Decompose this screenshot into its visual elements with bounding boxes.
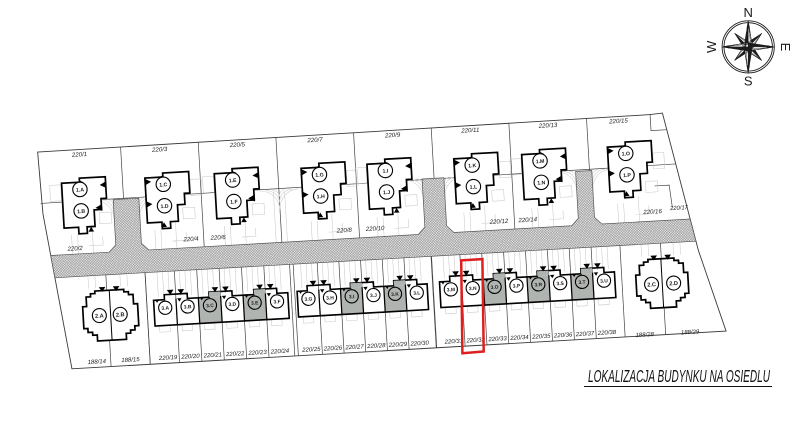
svg-text:1.M: 1.M [536,159,545,165]
svg-text:220/23: 220/23 [247,350,267,357]
svg-text:3.T: 3.T [578,280,585,286]
svg-text:220/4: 220/4 [182,236,199,244]
svg-text:220/7: 220/7 [306,136,323,144]
svg-text:188/15: 188/15 [121,357,140,364]
svg-text:3.D: 3.D [228,302,236,308]
svg-text:1.C: 1.C [159,182,168,188]
svg-text:1.G: 1.G [315,172,324,178]
svg-text:1.D: 1.D [160,204,169,210]
svg-text:LOKALIZACJA BUDYNKU NA OSIEDLU: LOKALIZACJA BUDYNKU NA OSIEDLU [588,366,770,386]
svg-text:3.J: 3.J [370,293,377,299]
svg-text:1.J: 1.J [383,190,391,196]
svg-text:220/13: 220/13 [537,122,558,130]
svg-text:1.I: 1.I [382,168,389,174]
svg-text:3.C: 3.C [206,303,214,309]
svg-text:3.P: 3.P [513,283,521,289]
svg-text:3.M: 3.M [447,287,455,293]
svg-text:188/29: 188/29 [681,329,700,336]
svg-text:3.N: 3.N [469,286,477,292]
svg-text:1.F: 1.F [230,199,238,205]
svg-text:1.O: 1.O [621,151,630,157]
svg-text:220/17: 220/17 [669,205,689,212]
svg-text:220/9: 220/9 [384,132,401,140]
svg-text:220/10: 220/10 [365,225,386,233]
svg-text:220/28: 220/28 [366,343,386,350]
svg-text:1.E: 1.E [229,178,238,184]
svg-text:220/25: 220/25 [301,347,321,354]
svg-text:3.K: 3.K [391,292,399,298]
svg-text:220/21: 220/21 [203,352,223,359]
svg-text:220/38: 220/38 [597,330,617,337]
svg-text:220/6: 220/6 [209,234,226,242]
svg-text:220/1: 220/1 [71,151,88,159]
svg-text:220/36: 220/36 [553,332,573,339]
svg-text:220/12: 220/12 [488,218,509,226]
svg-text:220/22: 220/22 [225,351,245,358]
svg-text:220/11: 220/11 [460,127,480,135]
svg-text:220/16: 220/16 [642,208,663,216]
svg-text:220/31: 220/31 [444,339,464,346]
svg-text:220/20: 220/20 [180,354,200,361]
svg-text:220/14: 220/14 [517,216,538,224]
svg-text:188/14: 188/14 [88,359,107,366]
svg-text:E: E [778,43,793,52]
svg-text:3.B: 3.B [184,304,192,310]
svg-text:3.E: 3.E [251,300,259,306]
svg-text:1.A: 1.A [76,187,85,193]
svg-text:2.D: 2.D [669,281,678,287]
svg-text:3.U: 3.U [600,278,608,284]
svg-text:220/2: 220/2 [66,245,83,253]
svg-text:220/29: 220/29 [388,342,408,349]
svg-text:220/34: 220/34 [509,335,529,342]
svg-text:1.L: 1.L [470,184,479,190]
svg-text:2.A: 2.A [95,313,104,319]
svg-text:3.S: 3.S [556,281,564,287]
svg-text:188/28: 188/28 [635,332,654,339]
svg-text:N: N [744,5,753,20]
svg-text:1.P: 1.P [623,173,632,179]
svg-text:1.K: 1.K [468,163,477,169]
svg-text:3.F: 3.F [273,299,280,305]
svg-text:220/3: 220/3 [151,146,168,154]
svg-text:220/15: 220/15 [608,117,629,125]
svg-text:3.I: 3.I [349,294,355,300]
svg-text:220/35: 220/35 [531,334,551,341]
svg-text:3.A: 3.A [161,305,169,311]
svg-text:220/30: 220/30 [409,341,429,348]
svg-text:220/5: 220/5 [229,141,246,149]
svg-text:220/26: 220/26 [323,346,343,353]
svg-text:3.O: 3.O [491,285,499,291]
svg-text:3.H: 3.H [326,295,334,301]
svg-text:S: S [744,74,753,89]
svg-text:1.H: 1.H [317,194,326,200]
svg-text:220/37: 220/37 [575,331,595,338]
svg-text:3.G: 3.G [304,296,312,302]
svg-text:1.B: 1.B [77,209,86,215]
svg-text:2.B: 2.B [116,312,125,318]
svg-text:220/33: 220/33 [487,336,507,343]
svg-text:3.R: 3.R [534,282,542,288]
svg-text:W: W [704,40,719,53]
svg-text:220/24: 220/24 [270,349,290,356]
svg-text:1.N: 1.N [537,180,546,186]
svg-text:220/19: 220/19 [158,355,178,362]
svg-text:220/8: 220/8 [335,227,352,235]
svg-text:220/27: 220/27 [344,344,364,351]
svg-text:2.C: 2.C [647,282,656,288]
svg-text:3.L: 3.L [413,290,420,296]
